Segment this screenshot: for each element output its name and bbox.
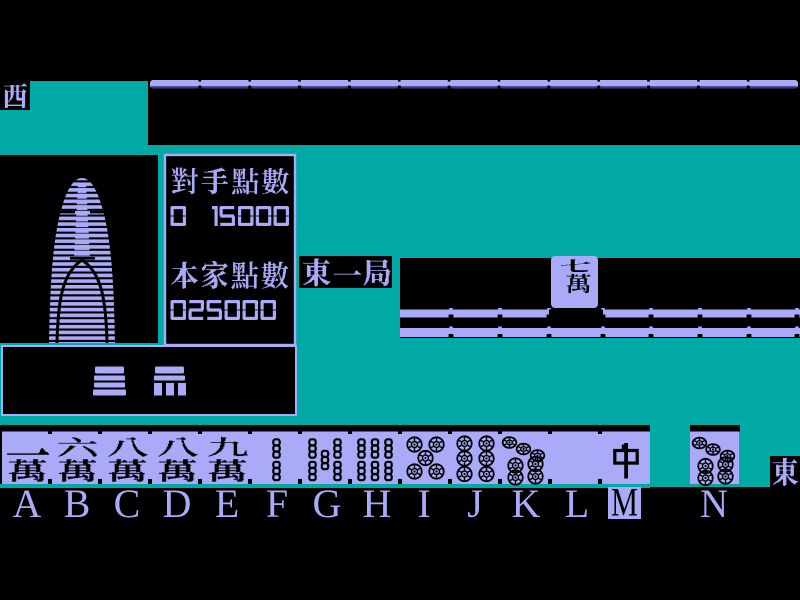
svg-text:D: D — [163, 481, 192, 526]
svg-text:G: G — [313, 481, 342, 526]
svg-text:H: H — [363, 481, 392, 526]
svg-text:L: L — [565, 481, 589, 526]
svg-text:K: K — [512, 481, 541, 526]
svg-text:B: B — [64, 481, 91, 526]
svg-text:F: F — [266, 481, 288, 526]
svg-text:J: J — [467, 481, 483, 526]
svg-text:N: N — [700, 481, 728, 526]
svg-text:C: C — [114, 481, 141, 526]
svg-text:A: A — [13, 481, 42, 526]
svg-text:M: M — [611, 480, 638, 525]
svg-text:I: I — [417, 481, 430, 526]
svg-text:E: E — [215, 481, 239, 526]
